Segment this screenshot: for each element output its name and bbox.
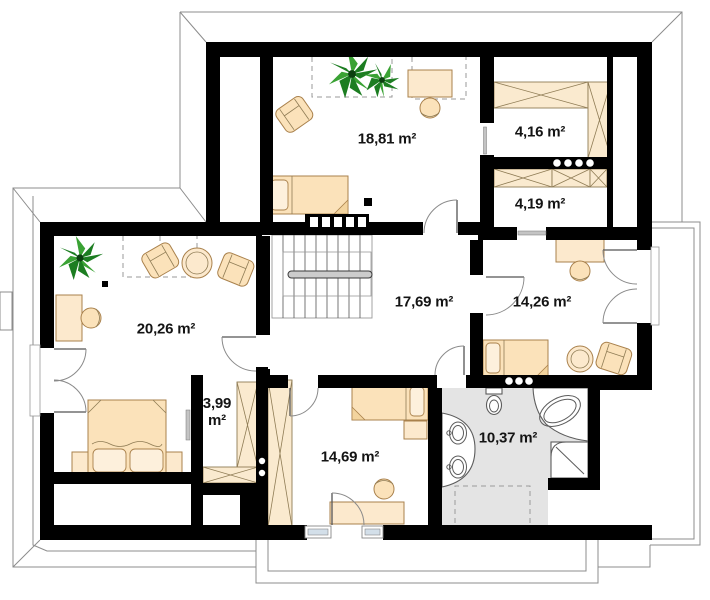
french-door-icon <box>30 345 86 416</box>
desk-icon <box>408 70 452 97</box>
balustrade-icon <box>305 214 369 235</box>
office-chair-icon <box>420 98 440 118</box>
room-area-label: 20,26 m² <box>137 322 195 339</box>
door-swing-icon <box>290 388 318 416</box>
french-door-icon <box>603 247 659 325</box>
armchair-icon <box>273 94 315 134</box>
armchair-icon <box>140 241 181 280</box>
doorway-marker <box>518 231 546 235</box>
wardrobe-icon <box>268 380 292 527</box>
door-swing-icon <box>222 337 256 371</box>
single-bed-icon <box>483 340 548 377</box>
room-area-label: 4,16 m² <box>515 125 565 142</box>
room-area-label: 3,99 m² <box>193 396 241 430</box>
plant-icon <box>329 50 377 98</box>
double-bed-icon <box>72 400 182 475</box>
wardrobe-icon <box>494 82 588 108</box>
chimney-marker <box>364 198 372 206</box>
window-icon <box>186 410 190 440</box>
window-icon <box>362 526 383 538</box>
desk-icon <box>330 502 404 524</box>
desk-icon <box>556 238 604 262</box>
shower-icon <box>551 442 588 478</box>
armchair-icon <box>216 251 256 288</box>
room-20-26-furniture <box>56 236 256 475</box>
room-area-label: 14,26 m² <box>513 295 571 312</box>
staircase-icon <box>272 235 372 318</box>
window-icon <box>305 526 331 538</box>
desk-icon <box>56 295 82 341</box>
chimney-icon <box>0 292 12 330</box>
floor-plan: 18,81 m² 4,16 m² 4,19 m² 17,69 m² 14,26 … <box>0 0 710 600</box>
nightstand-icon <box>404 421 427 439</box>
wardrobe-icon <box>494 169 607 187</box>
door-swing-icon <box>424 200 457 233</box>
armchair-icon <box>594 341 633 377</box>
terrace-icon <box>256 540 598 583</box>
office-chair-icon <box>81 308 101 328</box>
room-area-label: 4,19 m² <box>515 197 565 214</box>
door-swing-icon <box>435 346 464 375</box>
office-chair-icon <box>374 479 394 499</box>
round-table-icon <box>182 248 212 278</box>
room-area-label: 18,81 m² <box>358 132 416 149</box>
wardrobe-icon <box>203 467 258 483</box>
room-area-label: 14,69 m² <box>321 450 379 467</box>
plant-icon <box>59 236 103 280</box>
room-area-label: 17,69 m² <box>395 295 453 312</box>
office-chair-icon <box>570 261 590 281</box>
toilet-icon <box>486 388 502 415</box>
nightstand-icon <box>166 452 182 474</box>
single-bed-icon <box>268 176 348 214</box>
doorway-marker <box>484 127 487 154</box>
chimney-marker <box>102 281 108 287</box>
room-area-label: 10,37 m² <box>479 431 537 448</box>
nightstand-icon <box>72 452 88 474</box>
handrail-icon <box>288 271 372 278</box>
floor-plan-canvas <box>0 0 710 600</box>
single-bed-icon <box>352 383 428 420</box>
